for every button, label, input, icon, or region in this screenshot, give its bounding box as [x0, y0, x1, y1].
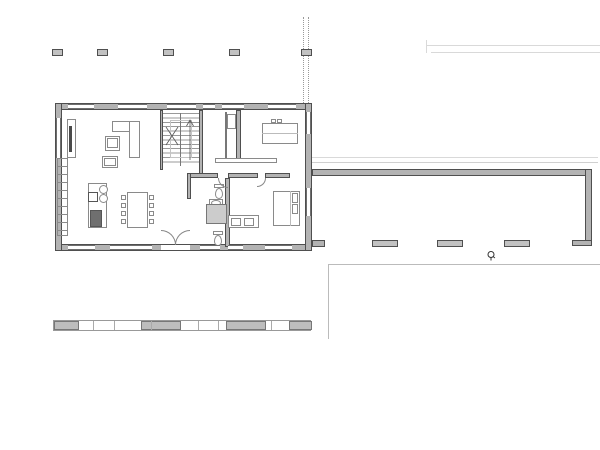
dining-chair — [121, 195, 126, 200]
dining-chair — [121, 203, 126, 208]
paving-line-horizontal — [328, 264, 600, 265]
entrance-opening — [161, 245, 190, 250]
garden-wall-strip — [53, 320, 311, 331]
carport-eaves-line-2 — [312, 162, 598, 163]
pergola-column — [229, 49, 240, 56]
stair-wall-right — [199, 110, 203, 174]
dining-chair — [121, 211, 126, 216]
sofa-right-section — [129, 121, 140, 158]
carport-wall-right-foot — [572, 240, 592, 246]
carport-wall-top — [312, 169, 592, 176]
garden-wall-pier — [54, 321, 79, 330]
entrance-door-leaf-right — [175, 230, 190, 245]
bed-south-pillow-2 — [292, 204, 298, 214]
bed-north-pillow-2 — [277, 119, 282, 123]
garden-wall-pier — [289, 321, 312, 330]
garden-wall-pier — [226, 321, 266, 330]
sideboard — [215, 158, 277, 163]
garden-wall-pier — [141, 321, 181, 330]
garden-wall-joint — [114, 321, 115, 330]
dining-chair — [121, 219, 126, 224]
pergola-column — [163, 49, 174, 56]
garden-wall-joint — [271, 321, 272, 330]
site-line-horizontal-lower — [431, 52, 600, 53]
carport-wall-right — [585, 169, 592, 246]
floor-plan-canvas — [0, 0, 600, 450]
carport-column — [437, 240, 463, 247]
window-glazing-bar — [69, 126, 72, 152]
dining-chair — [149, 195, 154, 200]
vanity-basin-2 — [244, 218, 254, 226]
house-wall-top — [55, 103, 312, 110]
dining-chair — [149, 211, 154, 216]
bedroom-partition-wall — [236, 110, 241, 162]
carport-wall-left-foot — [312, 240, 325, 247]
staircase-marks — [163, 113, 199, 166]
bed-south-pillow-1 — [292, 193, 298, 203]
bed-south-sheet-line — [290, 191, 291, 226]
toilet-bowl-1 — [215, 188, 223, 199]
shelving-unit — [57, 158, 68, 236]
hall-wall-segment-1 — [187, 173, 218, 178]
house-wall-right — [305, 103, 312, 251]
carport-column — [504, 240, 530, 247]
floor-drain-icon — [486, 250, 498, 262]
carport-eaves-line-1 — [312, 157, 598, 158]
dining-table — [127, 192, 148, 228]
vanity-basin-1 — [231, 218, 241, 226]
hall-wall-segment-3 — [265, 173, 290, 178]
site-line-horizontal-upper — [426, 45, 600, 46]
pergola-column — [52, 49, 63, 56]
section-dashed-line — [303, 17, 309, 103]
lounge-table-inner — [104, 158, 116, 166]
kitchen-oven — [88, 192, 98, 202]
garden-wall-joint — [93, 321, 94, 330]
paving-line-vertical — [328, 264, 329, 339]
dining-chair — [149, 219, 154, 224]
bed-north-pillow-1 — [271, 119, 276, 123]
kitchen-stove — [90, 210, 102, 227]
armchair-cushion — [107, 138, 118, 148]
kitchen-sink-bowl-2 — [99, 194, 108, 203]
garden-wall-joint — [151, 321, 152, 330]
hall-wall-segment-2 — [228, 173, 258, 178]
garden-wall-joint — [218, 321, 219, 330]
carport-column — [372, 240, 398, 247]
bedroom-door-leaf — [257, 178, 266, 187]
entrance-door-leaf-left — [161, 230, 176, 245]
dining-chair — [149, 203, 154, 208]
closet-box — [227, 114, 236, 129]
bed-north-sheet-line — [262, 133, 298, 134]
site-line-vertical — [426, 40, 427, 53]
kitchen-sink-bowl-1 — [99, 185, 108, 194]
wc-wall — [187, 173, 191, 199]
pergola-column — [97, 49, 108, 56]
garden-wall-joint — [198, 321, 199, 330]
shower — [206, 204, 227, 224]
toilet-bowl-2 — [214, 235, 222, 246]
